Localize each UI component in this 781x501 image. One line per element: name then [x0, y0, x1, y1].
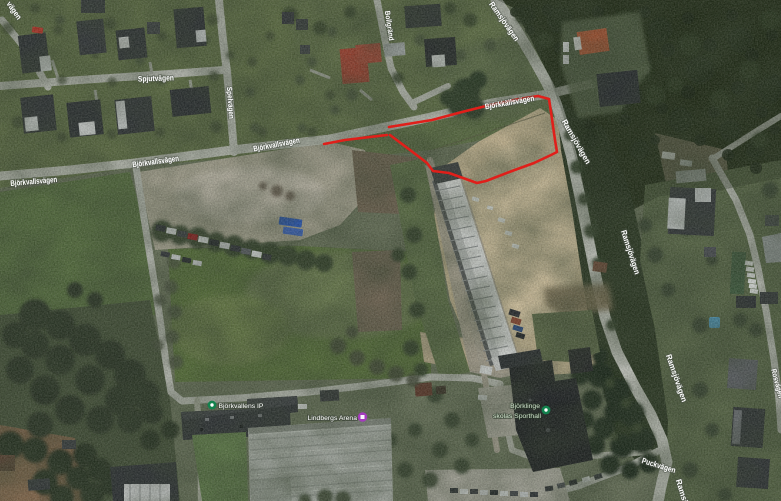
svg-text:Björkvallens IP: Björkvallens IP	[219, 403, 264, 410]
svg-text:Lindbergs Arena: Lindbergs Arena	[307, 415, 357, 422]
svg-text:skolas Sporthall: skolas Sporthall	[493, 413, 541, 420]
svg-text:Björklinge: Björklinge	[510, 403, 540, 410]
svg-text:Spjutvägen: Spjutvägen	[138, 73, 174, 83]
